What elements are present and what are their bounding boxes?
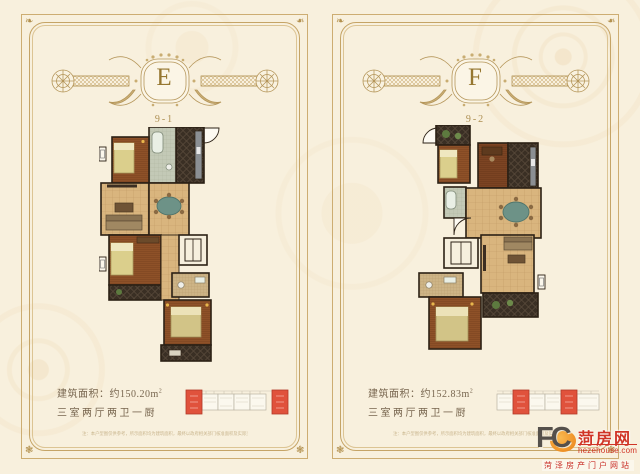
- logo-tagline: 菏泽房产门户网站: [542, 460, 634, 471]
- kitchen-counter: [195, 131, 202, 179]
- lamp: [165, 303, 168, 306]
- leaf-ornament-icon: ❧: [296, 17, 304, 27]
- coffee-table: [115, 203, 133, 212]
- plant: [492, 301, 500, 309]
- key-plan-e-svg: [184, 386, 290, 418]
- balcony-master: [161, 345, 211, 361]
- area-label: 建筑面积：约152.83m: [368, 389, 470, 400]
- kitchen-counter: [530, 147, 536, 186]
- chair: [489, 156, 494, 161]
- leaf-ornament-icon: ❧: [25, 17, 33, 27]
- ac-platform: [99, 257, 106, 271]
- bed-pillows: [171, 307, 201, 315]
- disclaimer-text: 注：本户型图仅供参考，所示面积均为建筑面积，最终以政府相关部门核准面积及实际交付…: [82, 430, 247, 436]
- shell-ornament-icon: ❃: [296, 446, 304, 456]
- balcony-top: [436, 125, 470, 145]
- area-text: 建筑面积：约150.20m2: [57, 385, 162, 400]
- unit-letter: E: [49, 64, 281, 92]
- floor-plan-e: [99, 127, 231, 370]
- logo-fc-letters: FC: [536, 422, 569, 455]
- site-watermark-logo: FC 菏房网 hezehouse.com 菏泽房产门户网站: [534, 422, 638, 472]
- plant: [116, 289, 122, 295]
- area-superscript: 2: [470, 389, 474, 395]
- sink: [444, 277, 456, 283]
- sink: [195, 277, 205, 283]
- sofa-back: [504, 237, 532, 242]
- bed-pillows: [111, 243, 133, 251]
- floorplan-flyer: ❧ ❧ ❃ ❃: [0, 0, 640, 474]
- unit-code: 9-2: [332, 114, 619, 125]
- bed-pillows: [114, 143, 134, 150]
- unit-info: 建筑面积：约152.83m2 三室两厅两卫一厨: [368, 385, 473, 419]
- bed-pillows: [436, 307, 468, 316]
- toilet: [177, 282, 183, 288]
- floor-plan-e-svg: [99, 127, 231, 365]
- ac-platform: [538, 275, 545, 289]
- wardrobe: [137, 237, 159, 243]
- lamp: [205, 303, 208, 306]
- floor-plan-f: [406, 125, 546, 360]
- layout-text: 三室两厅两卫一厨: [57, 404, 162, 419]
- plant: [442, 130, 450, 138]
- layout-text: 三室两厅两卫一厨: [368, 404, 473, 419]
- plant: [506, 300, 512, 306]
- tv-cabinet: [107, 185, 137, 188]
- area-text: 建筑面积：约152.83m2: [368, 385, 473, 400]
- filigree-banner: F: [360, 52, 592, 110]
- area-superscript: 2: [159, 389, 163, 395]
- sofa-back: [106, 215, 142, 221]
- key-plan-e: [184, 386, 290, 418]
- filigree-banner: E: [49, 52, 281, 110]
- lamp: [470, 302, 473, 305]
- toilet: [425, 282, 431, 288]
- sofa-seat: [504, 242, 532, 250]
- shell-ornament-icon: ❃: [336, 446, 344, 456]
- panel-unit-e: ❧ ❧ ❃ ❃: [21, 14, 308, 459]
- kitchen-sink: [531, 159, 535, 166]
- shell-ornament-icon: ❃: [25, 446, 33, 456]
- unit-letter: F: [360, 64, 592, 92]
- lamp: [141, 140, 144, 143]
- bathtub: [446, 191, 456, 209]
- toilet: [166, 164, 172, 170]
- leaf-ornament-icon: ❧: [336, 17, 344, 27]
- leaf-ornament-icon: ❧: [607, 17, 615, 27]
- key-plan-f: [495, 386, 601, 418]
- unit-info: 建筑面积：约150.20m2 三室两厅两卫一厨: [57, 385, 162, 419]
- sofa-seat: [106, 221, 142, 230]
- ac-platform: [99, 147, 106, 161]
- kitchen-sink: [196, 147, 200, 154]
- coffee-table: [508, 255, 525, 263]
- key-plan-f-svg: [495, 386, 601, 418]
- plant: [454, 133, 460, 139]
- desk: [482, 147, 502, 155]
- dining-table: [503, 202, 529, 222]
- dining-table: [157, 197, 181, 215]
- floor-plan-f-svg: [406, 125, 546, 355]
- washer: [169, 350, 181, 356]
- area-label: 建筑面积：约150.20m: [57, 389, 159, 400]
- entry-door-arc: [204, 128, 219, 143]
- tv-cabinet: [483, 245, 486, 271]
- logo-domain: hezehouse.com: [578, 444, 637, 455]
- bathtub: [152, 132, 163, 153]
- lamp: [431, 302, 434, 305]
- bed-pillows: [440, 150, 457, 157]
- panel-unit-f: ❧ ❧ ❃ ❃: [332, 14, 619, 459]
- unit-code: 9-1: [21, 114, 308, 125]
